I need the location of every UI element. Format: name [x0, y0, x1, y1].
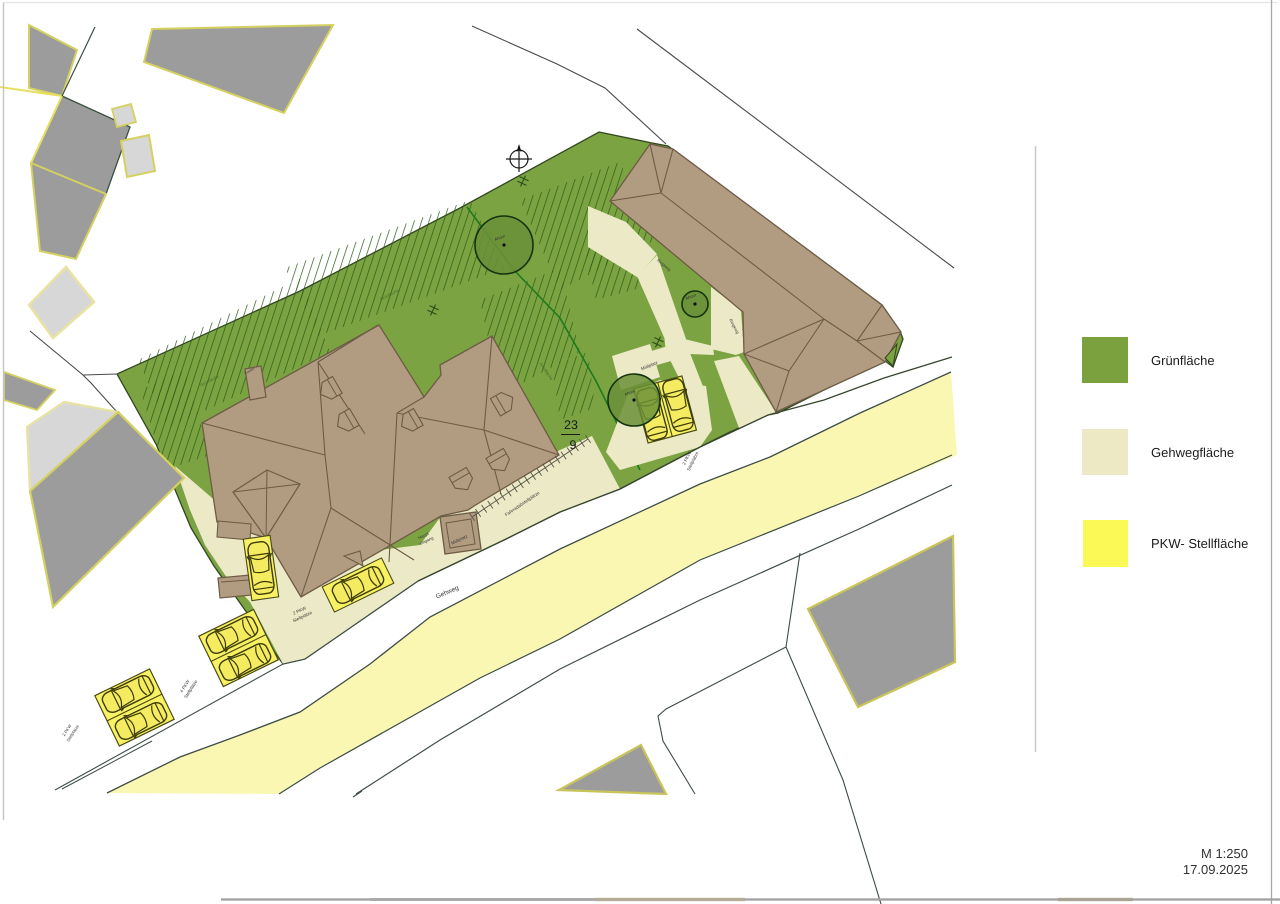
svg-text:M 1:250: M 1:250 — [1201, 846, 1248, 861]
svg-text:17.09.2025: 17.09.2025 — [1183, 862, 1248, 877]
svg-text:9: 9 — [570, 438, 577, 452]
svg-text:PKW- Stellfläche: PKW- Stellfläche — [1151, 536, 1248, 551]
svg-text:23: 23 — [564, 418, 578, 432]
svg-text:Grünfläche: Grünfläche — [1151, 353, 1215, 368]
svg-text:Gehwegfläche: Gehwegfläche — [1151, 445, 1234, 460]
